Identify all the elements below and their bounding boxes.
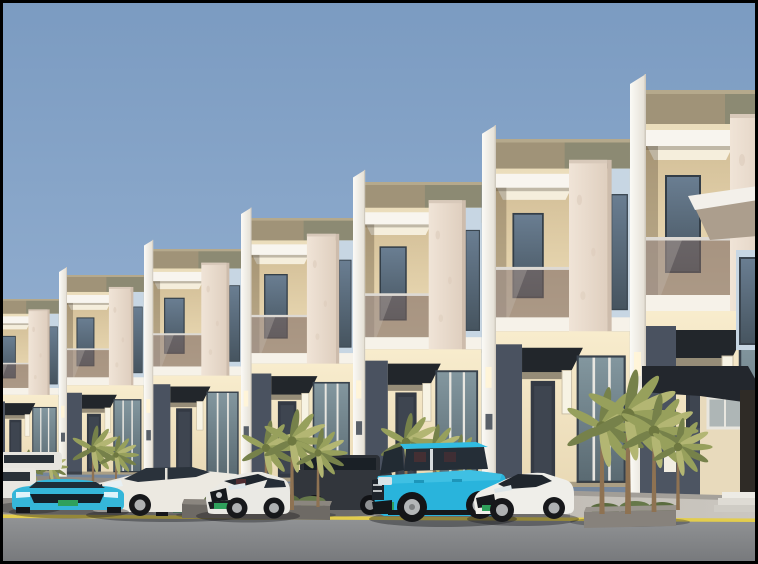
townhouse-unit-5 <box>144 240 241 484</box>
render-image <box>0 0 758 564</box>
townhouse-unit-7 <box>0 292 59 477</box>
scene-render <box>0 0 758 564</box>
